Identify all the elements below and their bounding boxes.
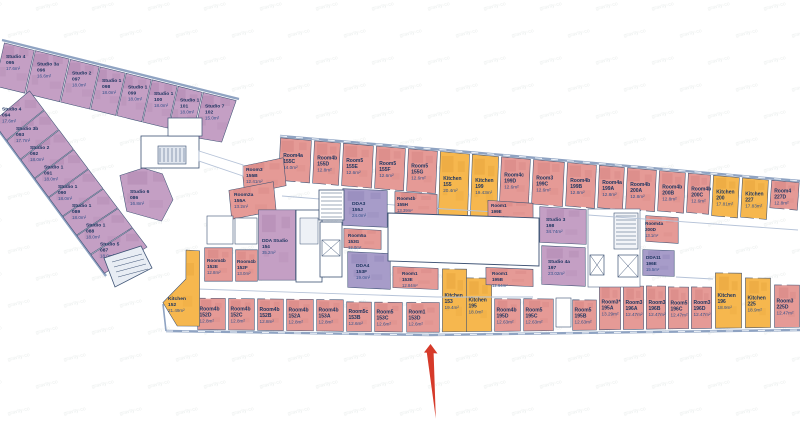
svg-text:35.2m²: 35.2m² <box>262 250 276 255</box>
svg-text:Studio 1: Studio 1 <box>58 184 78 190</box>
svg-text:12.64m²: 12.64m² <box>492 283 508 288</box>
svg-text:Room4b: Room4b <box>397 196 416 201</box>
svg-text:Studio 6: Studio 6 <box>130 189 150 195</box>
svg-text:18.0m²: 18.0m² <box>102 90 117 95</box>
svg-text:12.8m²: 12.8m² <box>319 320 334 325</box>
svg-text:Studio 1: Studio 1 <box>44 164 64 170</box>
svg-text:Studio 4a: Studio 4a <box>548 259 570 265</box>
svg-text:195B: 195B <box>492 277 504 282</box>
svg-text:12.6m²: 12.6m² <box>411 176 426 181</box>
svg-text:200D: 200D <box>645 227 657 232</box>
svg-text:Room4b: Room4b <box>237 259 256 264</box>
svg-text:Studio 5: Studio 5 <box>100 242 120 248</box>
svg-text:Room2a: Room2a <box>234 192 254 198</box>
svg-text:18.0m²: 18.0m² <box>86 234 101 239</box>
svg-text:18.9m²: 18.9m² <box>748 307 763 312</box>
svg-text:17.83m²: 17.83m² <box>745 203 762 208</box>
svg-text:16.6m²: 16.6m² <box>37 74 52 79</box>
svg-text:12.8m²: 12.8m² <box>207 270 221 275</box>
svg-text:12.8m²: 12.8m² <box>602 192 617 197</box>
svg-text:18.0m²: 18.0m² <box>154 103 169 108</box>
svg-text:Studio 2: Studio 2 <box>30 145 50 151</box>
svg-text:18.0m²: 18.0m² <box>72 82 87 87</box>
svg-text:12.63m²: 12.63m² <box>497 320 514 325</box>
svg-text:Room1: Room1 <box>402 271 418 276</box>
svg-text:12.6m²: 12.6m² <box>379 173 394 178</box>
svg-text:18.0m²: 18.0m² <box>469 309 484 314</box>
svg-text:12.6m²: 12.6m² <box>377 321 392 326</box>
svg-text:Studio 2: Studio 2 <box>72 70 92 76</box>
svg-text:23.02m²: 23.02m² <box>548 271 565 276</box>
svg-text:196E: 196E <box>646 261 657 266</box>
svg-text:152F: 152F <box>237 265 248 270</box>
svg-text:12.47m²: 12.47m² <box>671 312 688 317</box>
svg-text:17.7m²: 17.7m² <box>16 138 31 143</box>
svg-text:12.8m²: 12.8m² <box>289 319 304 324</box>
svg-text:12.63m²: 12.63m² <box>526 319 543 324</box>
svg-text:Studio 7: Studio 7 <box>205 104 225 110</box>
svg-text:16.8m²: 16.8m² <box>130 201 145 206</box>
svg-text:12.6m²: 12.6m² <box>504 185 519 190</box>
svg-text:153G: 153G <box>348 239 360 244</box>
svg-text:13.0m²: 13.0m² <box>237 271 251 276</box>
svg-text:24.0m²: 24.0m² <box>352 213 367 218</box>
svg-text:Room3: Room3 <box>246 167 263 173</box>
svg-text:21.49m²: 21.49m² <box>168 308 185 313</box>
svg-text:12.41m²: 12.41m² <box>246 179 263 184</box>
svg-text:20.4m²: 20.4m² <box>443 188 458 193</box>
svg-text:Room4a: Room4a <box>645 221 664 226</box>
svg-text:13.29m²: 13.29m² <box>602 311 619 316</box>
svg-text:12.6m²: 12.6m² <box>349 321 364 326</box>
svg-text:Studio 1: Studio 1 <box>72 203 92 209</box>
svg-text:199E: 199E <box>491 209 502 214</box>
svg-text:12.63m²: 12.63m² <box>575 320 592 325</box>
svg-text:13.1m²: 13.1m² <box>645 233 659 238</box>
svg-text:18.0m²: 18.0m² <box>180 109 195 114</box>
svg-text:18.0m²: 18.0m² <box>58 196 73 201</box>
svg-text:12.47m²: 12.47m² <box>649 312 666 317</box>
svg-text:12.6m²: 12.6m² <box>346 170 361 175</box>
svg-text:Studio 4: Studio 4 <box>6 54 26 60</box>
svg-text:19.4m²: 19.4m² <box>445 305 460 310</box>
svg-text:12.6m²: 12.6m² <box>691 199 706 204</box>
svg-text:12.8m²: 12.8m² <box>570 190 585 195</box>
svg-text:DDA4: DDA4 <box>356 263 370 269</box>
svg-text:DDA11: DDA11 <box>646 255 661 260</box>
svg-text:13.2m²: 13.2m² <box>234 204 249 209</box>
svg-text:Room1: Room1 <box>492 271 508 276</box>
svg-text:12.8m²: 12.8m² <box>200 318 215 323</box>
svg-text:12.8m²: 12.8m² <box>774 201 789 206</box>
svg-text:18.0m²: 18.0m² <box>44 176 59 181</box>
svg-text:17.81m²: 17.81m² <box>716 201 733 206</box>
svg-text:155H: 155H <box>397 202 409 207</box>
svg-text:17.6m²: 17.6m² <box>6 66 21 71</box>
svg-text:Room1: Room1 <box>491 203 507 208</box>
svg-text:Studio 1: Studio 1 <box>128 84 148 90</box>
svg-text:18.0m²: 18.0m² <box>30 157 45 162</box>
svg-text:12.84m²: 12.84m² <box>402 283 418 288</box>
svg-text:153E: 153E <box>402 277 413 282</box>
svg-text:12.6m²: 12.6m² <box>409 322 424 327</box>
svg-text:Studio 1: Studio 1 <box>154 91 174 97</box>
svg-text:Room4b: Room4b <box>207 258 226 263</box>
svg-text:18.0m²: 18.0m² <box>128 96 143 101</box>
svg-text:17.6m²: 17.6m² <box>2 119 17 124</box>
svg-text:Kitchen: Kitchen <box>168 296 186 302</box>
svg-text:12.0m²: 12.0m² <box>348 245 362 250</box>
svg-text:19.0m²: 19.0m² <box>356 275 371 280</box>
svg-text:19.43m²: 19.43m² <box>475 190 492 195</box>
svg-text:154: 154 <box>262 244 270 249</box>
svg-text:Studio 3b: Studio 3b <box>16 126 38 132</box>
svg-text:DDA3: DDA3 <box>352 201 366 207</box>
svg-text:12.47m²: 12.47m² <box>694 312 711 317</box>
svg-text:12.8m²: 12.8m² <box>260 319 275 324</box>
svg-text:Studio 1: Studio 1 <box>180 97 200 103</box>
svg-text:12.6m²: 12.6m² <box>536 187 551 192</box>
svg-text:12.8m²: 12.8m² <box>630 194 645 199</box>
svg-text:12.8m²: 12.8m² <box>231 319 246 324</box>
svg-text:14.0m²: 14.0m² <box>283 165 298 170</box>
svg-text:15.5m²: 15.5m² <box>646 267 660 272</box>
svg-text:DDA Studio: DDA Studio <box>262 238 288 243</box>
svg-text:12.47m²: 12.47m² <box>626 312 643 317</box>
svg-text:Studio 3: Studio 3 <box>546 217 566 223</box>
svg-text:12.8m²: 12.8m² <box>317 168 332 173</box>
svg-text:Room5a: Room5a <box>348 233 367 238</box>
svg-text:Studio 1: Studio 1 <box>86 222 106 228</box>
svg-text:15.0m²: 15.0m² <box>205 116 220 121</box>
svg-text:12.47m²: 12.47m² <box>777 311 794 316</box>
svg-text:152E: 152E <box>207 264 218 269</box>
svg-text:Studio 4: Studio 4 <box>2 107 22 113</box>
svg-text:13.39m²: 13.39m² <box>397 208 413 213</box>
svg-text:34.74m²: 34.74m² <box>546 229 563 234</box>
svg-text:Studio 1: Studio 1 <box>102 78 122 84</box>
svg-text:12.8m²: 12.8m² <box>662 197 677 202</box>
svg-text:18.9m²: 18.9m² <box>718 305 733 310</box>
svg-text:18.0m²: 18.0m² <box>72 215 87 220</box>
svg-text:Studio 3a: Studio 3a <box>37 62 59 68</box>
